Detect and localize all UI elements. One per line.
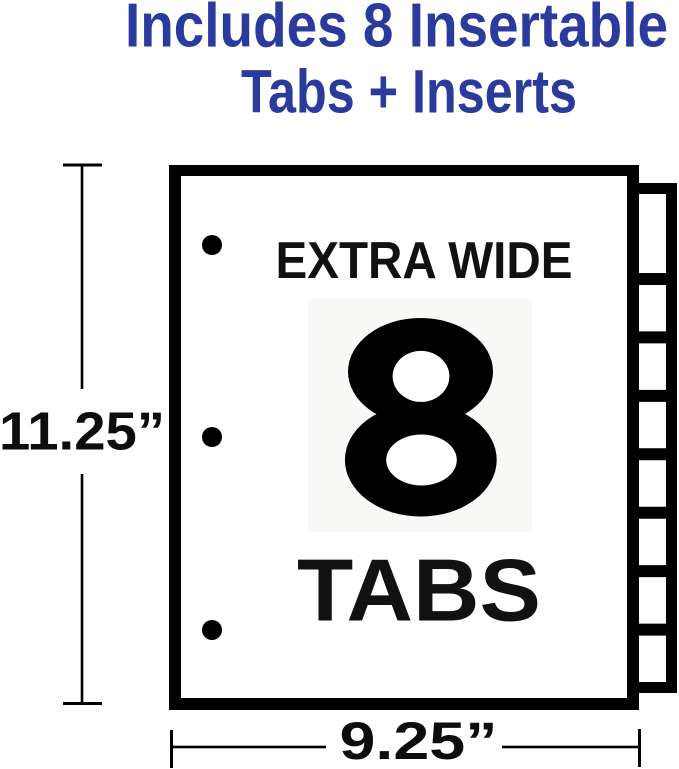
svg-text:EXTRA WIDE: EXTRA WIDE xyxy=(276,232,573,290)
svg-text:Includes 8 Insertable: Includes 8 Insertable xyxy=(125,0,668,60)
svg-text:9.25”: 9.25” xyxy=(340,712,498,769)
svg-text:TABS: TABS xyxy=(297,540,541,639)
svg-text:11.25”: 11.25” xyxy=(0,402,165,462)
svg-text:Tabs + Inserts: Tabs + Inserts xyxy=(241,58,577,126)
